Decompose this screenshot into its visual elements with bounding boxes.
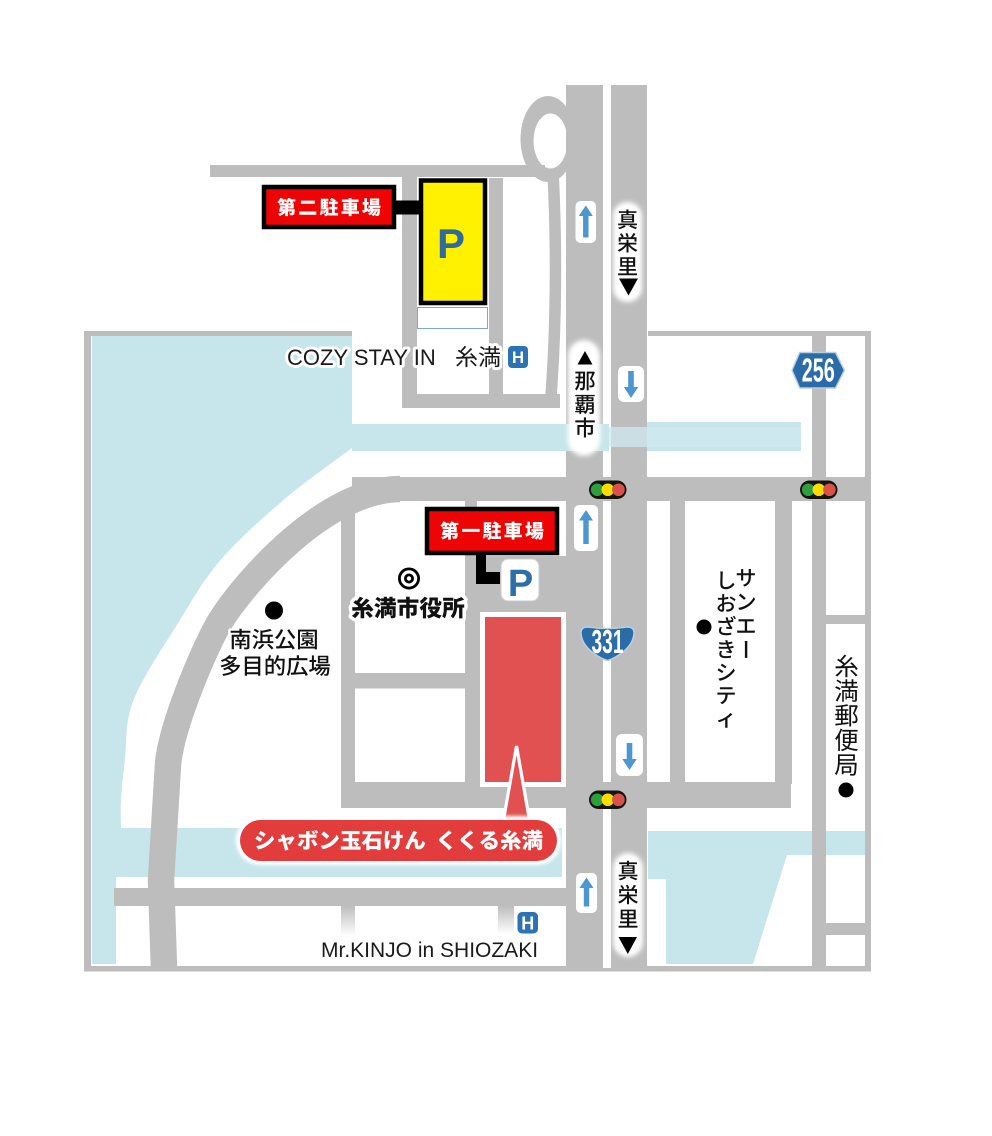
svg-text:331: 331 [592, 624, 624, 661]
svg-text:COZY STAY IN: COZY STAY IN [287, 345, 436, 370]
svg-text:256: 256 [802, 351, 835, 389]
svg-text:P: P [437, 220, 465, 267]
svg-text:P: P [508, 563, 533, 605]
svg-text:H: H [512, 348, 524, 367]
svg-text:H: H [521, 914, 534, 934]
svg-text:Mr.KINJO in SHIOZAKI: Mr.KINJO in SHIOZAKI [321, 939, 538, 962]
